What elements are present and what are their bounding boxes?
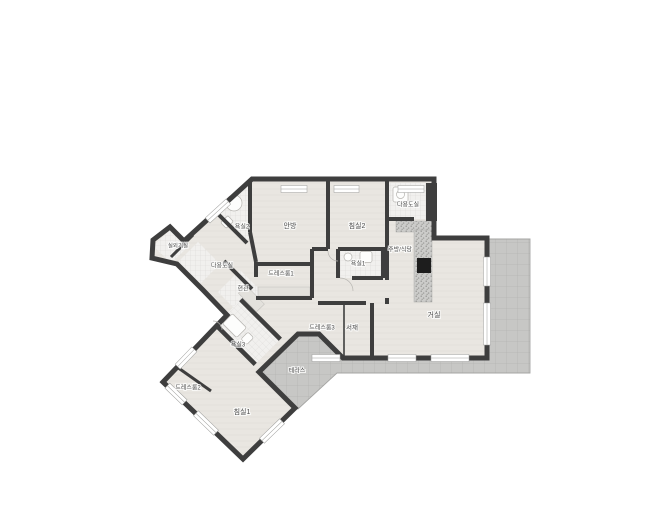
window-living-right-2 (484, 303, 491, 345)
room-label-master-bedroom: 안방 (284, 221, 297, 230)
room-label-outdoor-unit: 실외기실 (168, 241, 188, 249)
window-living-bottom-2 (431, 355, 469, 362)
room-label-bedroom2: 침실2 (349, 221, 366, 230)
room-label-dressroom2: 드레스룸2 (175, 384, 201, 392)
room-label-bathroom2: 욕실2 (235, 223, 250, 231)
room-label-study: 서재 (346, 323, 358, 332)
window-living-bottom-1 (388, 355, 416, 362)
window-utility-top (398, 186, 424, 193)
room-label-bathroom3: 욕실3 (231, 341, 246, 349)
room-label-bathroom1: 욕실1 (351, 260, 366, 268)
dressroom1-closet (258, 287, 310, 296)
room-label-kitchen-dining: 주방/식당 (388, 246, 412, 254)
room-label-entrance: 현관 (237, 285, 249, 293)
room-label-dressroom3: 드레스룸3 (309, 324, 335, 332)
window-bedroom2-top (334, 186, 359, 193)
room-label-bedroom1: 침실1 (234, 407, 251, 416)
window-study-bottom (312, 355, 340, 362)
room-label-utility-top: 다용도실 (397, 201, 419, 209)
floor-plan-canvas: 안방침실2다용도실주방/식당거실욕실1드레스룸1현관다용도실실외기실욕실2드레스… (0, 0, 657, 512)
room-label-utility-left: 다용도실 (211, 262, 233, 270)
window-living-right-1 (484, 257, 491, 286)
window-master-top (281, 186, 307, 193)
room-label-dressroom1: 드레스룸1 (268, 270, 294, 278)
room-label-terrace: 테라스 (289, 367, 306, 375)
sink1-icon (344, 253, 352, 261)
floor-plan-svg: 안방침실2다용도실주방/식당거실욕실1드레스룸1현관다용도실실외기실욕실2드레스… (0, 0, 657, 512)
room-label-living-room: 거실 (428, 310, 441, 319)
kitchen-island-icon (417, 258, 431, 273)
